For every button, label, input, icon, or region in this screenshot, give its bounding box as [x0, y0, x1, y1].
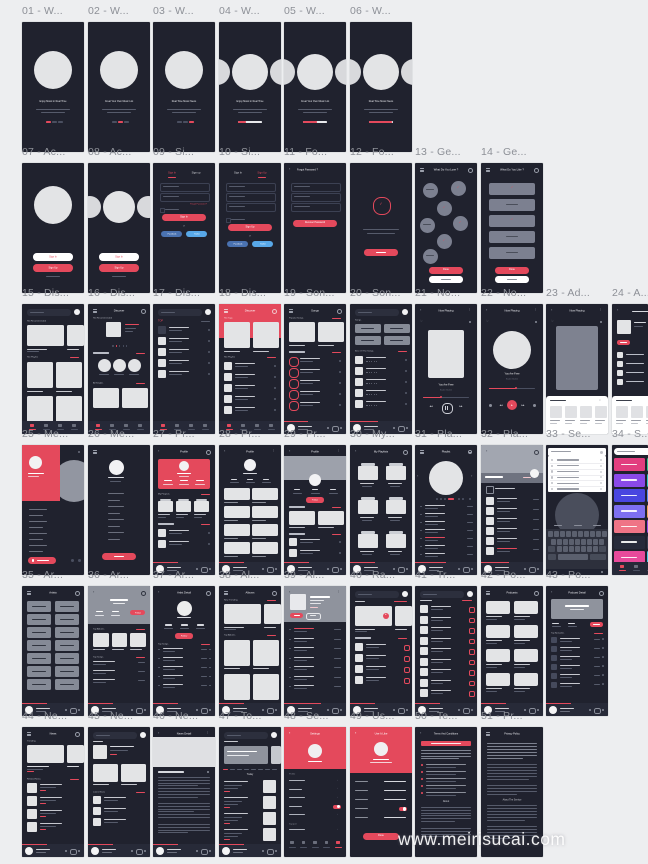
folder	[358, 534, 378, 548]
page-dot	[458, 498, 460, 500]
artboard-label[interactable]: 31 - Pla...	[415, 428, 481, 441]
artboard-25[interactable]	[22, 445, 84, 575]
text-line	[431, 638, 451, 639]
text-line	[497, 511, 510, 512]
text-line	[565, 420, 575, 421]
paragraph-line	[158, 817, 210, 818]
section-title: Popular Songs	[289, 317, 323, 319]
artboard-16[interactable]: DiscoverHot RecommendedAll Singles	[88, 304, 150, 434]
artboard-label[interactable]: 11 - Fo...	[284, 146, 350, 159]
artboard-06[interactable]: Real Time Music News	[350, 22, 412, 152]
text-line	[169, 371, 189, 372]
artist-circle	[128, 359, 141, 372]
text-line	[495, 567, 509, 568]
text-line	[169, 541, 189, 542]
text-line	[294, 628, 314, 629]
chip-label-bar	[60, 606, 74, 607]
text-line	[361, 328, 374, 329]
text-line	[360, 517, 374, 518]
artboard-02[interactable]: Creat Your Own Music List	[88, 22, 150, 152]
chip-label-bar	[32, 619, 46, 620]
text-line	[364, 567, 378, 568]
artboard-12[interactable]: ✓	[350, 163, 412, 293]
artboard-30[interactable]: ‹My Playlists	[350, 445, 412, 575]
card	[252, 524, 278, 536]
artboard-label[interactable]: 36 - Ar...	[88, 569, 154, 582]
section-title: Trending	[27, 740, 61, 742]
card	[67, 745, 84, 763]
prev-icon: ◂◂	[497, 404, 505, 407]
text-line	[169, 363, 182, 364]
artboard-label[interactable]: 03 - W...	[153, 5, 219, 18]
text-line	[366, 401, 386, 402]
setting-label-bar	[289, 797, 305, 798]
text-line	[224, 781, 248, 782]
artboard-03[interactable]: Real Time Music News	[153, 22, 215, 152]
artboard-label[interactable]: 16 - Dis...	[88, 287, 154, 300]
input-placeholder	[229, 186, 245, 187]
paragraph-line	[158, 830, 210, 831]
text-line	[235, 399, 248, 400]
artboard-label[interactable]: 50 - Te...	[415, 710, 481, 723]
artboard-label[interactable]: 34 - S...	[612, 428, 648, 441]
page-dot	[46, 121, 51, 123]
artboard-label[interactable]: 44 - Ne...	[22, 710, 88, 723]
artboard-08[interactable]: Sign InSign Up	[88, 163, 150, 293]
artboard-label[interactable]: 13 - Ge...	[415, 146, 481, 159]
text-line	[425, 505, 445, 506]
icon	[71, 559, 74, 562]
artboard-label[interactable]: 37 - Ar...	[153, 569, 219, 582]
album-thumb	[617, 320, 631, 334]
artboard-label[interactable]: 15 - Dis...	[22, 287, 88, 300]
row-thumb	[420, 658, 428, 666]
text-line	[252, 502, 266, 503]
bullet-marker	[421, 778, 423, 780]
text-line	[426, 767, 456, 768]
artboard-label[interactable]: 45 - Ne...	[88, 710, 154, 723]
menu-icon	[27, 735, 31, 736]
play-circle	[469, 607, 475, 613]
text-line	[366, 669, 379, 670]
row-action-icon	[274, 365, 276, 367]
see-all-link	[332, 352, 341, 353]
paragraph-line	[487, 743, 537, 744]
search-icon	[337, 309, 342, 314]
card	[253, 640, 279, 666]
artboard-label[interactable]: 28 - Pr...	[219, 428, 285, 441]
play-circle	[469, 670, 475, 676]
row-thumb	[617, 361, 623, 367]
card	[224, 506, 250, 518]
artboard-21[interactable]: ‹⋮Now Playing♡You Are FreeBaden Baden◂◂▸…	[415, 304, 477, 434]
artboard-22[interactable]: ‹⋮Now Playing♡You Are FreeBaden Baden◂◂▸…	[481, 304, 543, 434]
section-title: Top Songs	[93, 656, 127, 658]
screen-title: My Playlists	[361, 451, 401, 454]
artboard-40[interactable]: ▸	[350, 586, 412, 716]
artboard-10[interactable]: Sign InSign UpSign UporFacebookTwitter	[219, 163, 281, 293]
artboard-15[interactable]: Hot RecommendedHot Playlist	[22, 304, 84, 434]
player-progress	[284, 703, 321, 704]
bullet-marker	[421, 785, 423, 787]
stat-label-bar	[262, 482, 271, 483]
track-number	[420, 538, 422, 539]
suggestion-bar	[557, 459, 579, 460]
artboard-36[interactable]: ‹FollowTop AlbumsTop Songs	[88, 586, 150, 716]
back-icon: ‹	[486, 449, 490, 453]
player-progress	[481, 562, 509, 563]
artboard-label[interactable]: 06 - W...	[350, 5, 416, 18]
artboard-43[interactable]: ‹Podcast DetailTop Episodes	[546, 586, 608, 716]
menu-item-bar	[108, 500, 120, 501]
row-action-icon	[274, 409, 276, 411]
text-line	[364, 708, 378, 709]
artboard-label[interactable]: 51 - Pr...	[481, 710, 547, 723]
paragraph-line	[421, 815, 471, 816]
chevron-icon: ›	[337, 787, 341, 790]
artboard-34[interactable]	[612, 445, 648, 575]
text-line	[224, 351, 240, 352]
see-all-link	[267, 635, 276, 636]
artboard-44[interactable]: NewsTrendingRelated News	[22, 727, 84, 857]
screen-title: What Do You Like ?	[492, 169, 532, 172]
row-action-icon	[405, 403, 407, 405]
artboard-label[interactable]: 10 - Si...	[219, 146, 285, 159]
artboard-label[interactable]: 42 - Po...	[481, 569, 547, 582]
artboard-label[interactable]: 21 - No...	[415, 287, 481, 300]
text-line	[172, 112, 196, 113]
placeholder-circle	[602, 647, 604, 649]
card	[93, 388, 119, 408]
back-icon: ‹	[420, 308, 424, 312]
see-all-link	[398, 638, 407, 639]
artboard-label[interactable]: 32 - Pla...	[481, 428, 547, 441]
paragraph-line	[158, 785, 198, 786]
artboard-17[interactable]: TOP	[153, 304, 215, 434]
row-thumb	[420, 679, 428, 687]
button-label: Done	[429, 269, 463, 271]
placeholder-circle	[602, 674, 604, 676]
play-circle	[404, 678, 410, 684]
chip-label-bar	[32, 684, 46, 685]
rating-dot	[374, 361, 375, 362]
row-thumb	[420, 647, 428, 655]
text-line	[486, 640, 502, 641]
artboard-14[interactable]: What Do You Like ?✓✓Done	[481, 163, 543, 293]
text-line	[318, 345, 334, 346]
menu-icon	[420, 168, 424, 169]
news-thumb	[27, 809, 37, 819]
text-line	[366, 647, 379, 648]
artboard-label[interactable]: 41 - Tr...	[415, 569, 481, 582]
placeholder-circle	[401, 59, 412, 85]
artboard-label[interactable]: 39 - Al...	[284, 569, 350, 582]
input-field	[160, 183, 210, 192]
folder	[386, 534, 406, 548]
artboard-label[interactable]: 38 - Al...	[219, 569, 285, 582]
artboard-label[interactable]: 49 - Us...	[350, 710, 416, 723]
row-thumb	[289, 549, 297, 557]
artboard-04[interactable]: Enjoy Music in Real Time	[219, 22, 281, 152]
text-line	[294, 650, 307, 651]
artboard-11[interactable]: ‹Forgot Password ?Recover Password	[284, 163, 346, 293]
row-action-icon	[405, 370, 407, 372]
tab-label-bar	[323, 847, 330, 848]
text-line	[390, 328, 403, 329]
text-line	[169, 352, 182, 353]
walkthrough-title: Enjoy Music in Real Time	[28, 101, 78, 103]
artboard-label[interactable]: 23 - Ad...	[546, 287, 612, 300]
genre-label-bar	[621, 541, 637, 543]
artboard-label[interactable]: 18 - Dis...	[219, 287, 285, 300]
row-action-icon	[274, 376, 276, 378]
paragraph-line	[487, 752, 537, 753]
text-line	[425, 537, 445, 538]
artboard-39[interactable]: ‹⋮	[284, 586, 346, 716]
artboard-32[interactable]: ‹	[481, 445, 543, 575]
page-dot	[124, 121, 129, 123]
text-line	[369, 112, 393, 113]
row-action-icon	[405, 392, 407, 394]
artboard-label[interactable]: 20 - Son...	[350, 287, 416, 300]
field-label-bar	[355, 799, 368, 800]
key	[602, 531, 607, 537]
arrow-icon	[600, 488, 602, 490]
tab-sign-in: Sign In	[163, 172, 181, 175]
placeholder-circle	[602, 656, 604, 658]
text-line	[426, 792, 466, 793]
artboard-label[interactable]: 04 - W...	[219, 5, 285, 18]
menu-icon	[93, 312, 97, 313]
row-action-icon	[208, 362, 210, 364]
paragraph-line	[487, 764, 537, 765]
text-line	[224, 502, 238, 503]
section-title: New Trending	[224, 599, 258, 601]
hero-art	[34, 186, 72, 224]
artboard-33[interactable]	[546, 445, 608, 575]
text-line	[110, 750, 128, 751]
player-progress	[481, 703, 506, 704]
text-line	[560, 683, 580, 684]
walkthrough-art	[165, 51, 203, 89]
text-line	[252, 556, 266, 557]
text-line	[300, 391, 320, 392]
text-line	[176, 517, 184, 518]
artboard-label[interactable]: 43 - Po...	[546, 569, 612, 582]
text-line	[514, 691, 525, 692]
artboard-label[interactable]: 35 - Ar...	[22, 569, 88, 582]
playlist-title-bar	[485, 476, 503, 478]
row-thumb	[420, 689, 428, 697]
card	[486, 673, 510, 686]
suggestion-bar	[557, 477, 579, 478]
key	[560, 531, 565, 537]
card	[122, 388, 148, 408]
artboard-23[interactable]: ‹⋮Now Playing♡×	[546, 304, 608, 434]
text-line	[125, 331, 133, 332]
text-line	[560, 638, 580, 639]
button-label: Sign In	[99, 256, 139, 259]
artboard-label[interactable]: 01 - W...	[22, 5, 88, 18]
artboard-label[interactable]: 27 - Pr...	[153, 428, 219, 441]
tag-bar	[110, 754, 117, 755]
artboard-label[interactable]: 40 - Ra...	[350, 569, 416, 582]
avatar	[308, 744, 322, 758]
artboard-label[interactable]: 22 - No...	[481, 287, 547, 300]
walkthrough-title: Enjoy Music in Real Time	[225, 101, 275, 103]
artboard-13[interactable]: What Do You Love ?✓✓✓✓Done	[415, 163, 477, 293]
button-label: Sign Up	[228, 226, 272, 229]
placeholder-circle	[335, 59, 346, 85]
artboard-19[interactable]: SongsPopular Songs	[284, 304, 346, 434]
prev-icon: ◂◂	[427, 405, 435, 408]
arrow-icon	[600, 476, 602, 478]
artboard-label[interactable]: 08 - Ac...	[88, 146, 154, 159]
see-all-link	[201, 494, 210, 495]
artboard-label[interactable]: 19 - Son...	[284, 287, 350, 300]
artboard-label[interactable]: 33 - Se...	[546, 428, 612, 441]
avatar	[29, 456, 42, 469]
artboard-26[interactable]	[88, 445, 150, 575]
artboard-24[interactable]: ‹⋮×	[612, 304, 648, 434]
artboard-42[interactable]: Podcasts	[481, 586, 543, 716]
text-line	[616, 423, 623, 424]
artboard-18[interactable]: DiscoverHot TagsHot Playlist	[219, 304, 281, 434]
artboard-label[interactable]: 02 - W...	[88, 5, 154, 18]
text-line	[233, 852, 243, 853]
artboard-41[interactable]	[415, 586, 477, 716]
artboard-47[interactable]: Today	[219, 727, 281, 857]
section-title-bar	[355, 637, 371, 638]
text-line	[395, 629, 407, 630]
player-progress	[219, 844, 244, 845]
about-heading: About The Service	[487, 799, 537, 801]
text-line	[426, 795, 456, 796]
screen-title: Forgot Password ?	[297, 169, 333, 172]
section-title-bar	[289, 533, 305, 534]
next-icon: ›	[471, 474, 475, 478]
menu-icon	[93, 453, 97, 454]
field-label-bar	[355, 781, 368, 782]
row-action-icon	[208, 329, 210, 331]
text-line	[224, 627, 244, 628]
tab-sign-up: Sign Up	[253, 172, 271, 175]
artboard-27[interactable]: ‹ProfileMy Playlists	[153, 445, 215, 575]
artboard-38[interactable]: AlbumsNew TrendingTop Albums	[219, 586, 281, 716]
artboard-09[interactable]: Sign InSign upForgot Password ?Sign Inor…	[153, 163, 215, 293]
artboard-46[interactable]: ‹⋮News Detail	[153, 727, 215, 857]
screen-title: Profile	[164, 451, 204, 454]
text-line	[425, 556, 438, 557]
artboard-01[interactable]: Enjoy Music in Real Time	[22, 22, 84, 152]
menu-item-bar	[108, 526, 120, 527]
artboard-05[interactable]: Creat Your Own Music List	[284, 22, 346, 152]
placeholder-circle	[602, 665, 604, 667]
artboard-20[interactable]: SongsBest Of The Songs	[350, 304, 412, 434]
text-line	[163, 648, 183, 649]
artboard-label[interactable]: 14 - Ge...	[481, 146, 547, 159]
artboard-label[interactable]: 07 - Ac...	[22, 146, 88, 159]
artboard-29[interactable]: ‹⋮ProfileFollow	[284, 445, 346, 575]
card	[289, 511, 315, 525]
follow-button: Follow	[130, 610, 145, 615]
setting-label-bar	[289, 806, 302, 807]
artboard-label[interactable]: 46 - Ne...	[153, 710, 219, 723]
section-title-bar	[224, 741, 238, 742]
text-line	[370, 762, 392, 763]
artist-name: Baden Baden	[487, 378, 537, 380]
tab-label-bar	[312, 847, 319, 848]
toggle-knob	[403, 807, 406, 810]
stat-value-bar	[294, 489, 300, 490]
artboard-07[interactable]: Sign InSign Up	[22, 163, 84, 293]
artboard-48[interactable]: ‹SettingsProfile››››Support›	[284, 727, 346, 857]
card	[252, 488, 278, 500]
artboard-31[interactable]: Playlist‹›	[415, 445, 477, 575]
row-thumb	[355, 356, 363, 364]
screen-title: Now Playing	[426, 310, 466, 313]
input-field	[291, 203, 341, 212]
card	[130, 633, 146, 647]
artboard-label[interactable]: 09 - Si...	[153, 146, 219, 159]
artboard-label[interactable]: 30 - My...	[350, 428, 416, 441]
text-line	[298, 109, 332, 110]
artboard-label[interactable]: 25 - Me...	[22, 428, 88, 441]
artboard-45[interactable]: Latest News	[88, 727, 150, 857]
artboard-label[interactable]: 24 - A...	[612, 287, 648, 300]
tab-sign-up: Sign up	[187, 172, 205, 175]
more-icon: ⋮	[272, 449, 275, 453]
see-all-link	[332, 318, 341, 319]
see-all-link	[70, 357, 79, 358]
placeholder-circle	[88, 196, 101, 218]
song-title: You Are Free	[487, 373, 537, 376]
artboard-label[interactable]: 29 - Pr...	[284, 428, 350, 441]
tab-icon	[189, 424, 192, 427]
artboard-label[interactable]: 12 - Fo...	[350, 146, 416, 159]
search-icon	[206, 450, 211, 455]
artboard-35[interactable]: Artists	[22, 586, 84, 716]
card	[271, 746, 281, 764]
screen-title: Artists	[33, 592, 73, 595]
artboard-label[interactable]: 48 - Se...	[284, 710, 350, 723]
artboard-28[interactable]: ‹⋮Profile	[219, 445, 281, 575]
artboard-label[interactable]: 17 - Dis...	[153, 287, 219, 300]
page-dot	[112, 121, 117, 123]
search-icon	[534, 168, 539, 173]
paragraph-line	[487, 749, 537, 750]
text-line	[67, 766, 79, 767]
text-line	[40, 797, 62, 798]
text-line	[40, 823, 62, 824]
artboard-label[interactable]: 47 - To...	[219, 710, 285, 723]
artboard-label[interactable]: 05 - W...	[284, 5, 350, 18]
sign-up-button: Sign Up	[99, 264, 139, 272]
chip-label-bar	[60, 684, 74, 685]
row-thumb	[420, 616, 428, 624]
text-line	[560, 674, 580, 675]
text-line	[294, 688, 307, 689]
key	[557, 539, 562, 545]
stat-value-bar	[165, 624, 172, 626]
artboard-37[interactable]: ‹Artist DetailFollowTop Songs	[153, 586, 215, 716]
paragraph-line	[487, 811, 537, 812]
row-thumb	[224, 384, 232, 392]
tag-bar	[224, 839, 230, 840]
artboard-label[interactable]: 26 - Me...	[88, 428, 154, 441]
paragraph-line	[158, 777, 210, 778]
thumb	[631, 406, 643, 418]
